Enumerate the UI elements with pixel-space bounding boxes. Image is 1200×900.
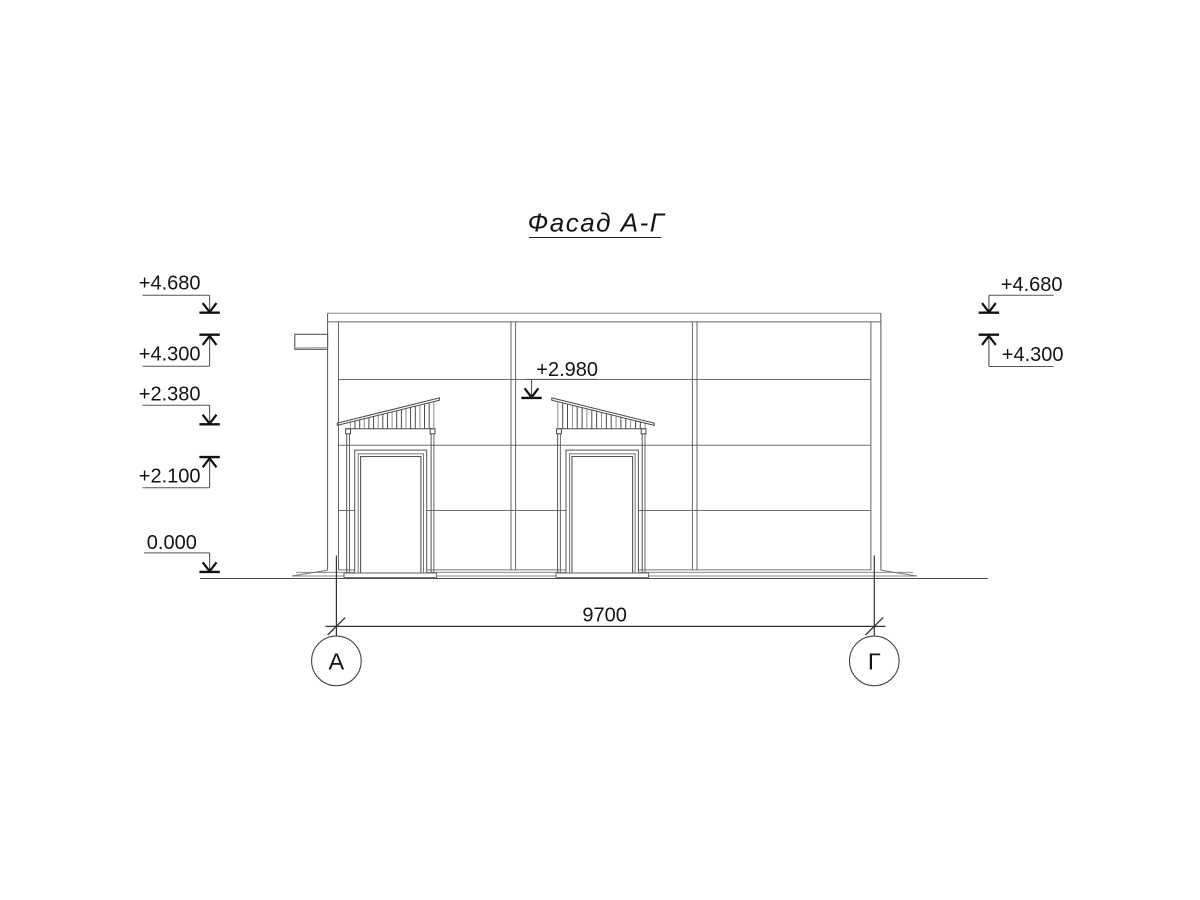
svg-text:+2.980: +2.980 <box>536 359 598 381</box>
svg-text:+4.680: +4.680 <box>139 273 201 295</box>
svg-text:+4.680: +4.680 <box>1001 274 1063 296</box>
svg-text:Фасад А-Г: Фасад А-Г <box>528 208 666 238</box>
svg-text:+4.300: +4.300 <box>1002 344 1064 366</box>
svg-text:9700: 9700 <box>582 605 627 627</box>
svg-text:+2.380: +2.380 <box>139 384 201 406</box>
svg-text:+2.100: +2.100 <box>139 465 201 487</box>
svg-text:А: А <box>329 649 345 675</box>
svg-text:0.000: 0.000 <box>147 532 197 554</box>
svg-text:Г: Г <box>868 649 881 675</box>
svg-text:+4.300: +4.300 <box>139 344 201 366</box>
